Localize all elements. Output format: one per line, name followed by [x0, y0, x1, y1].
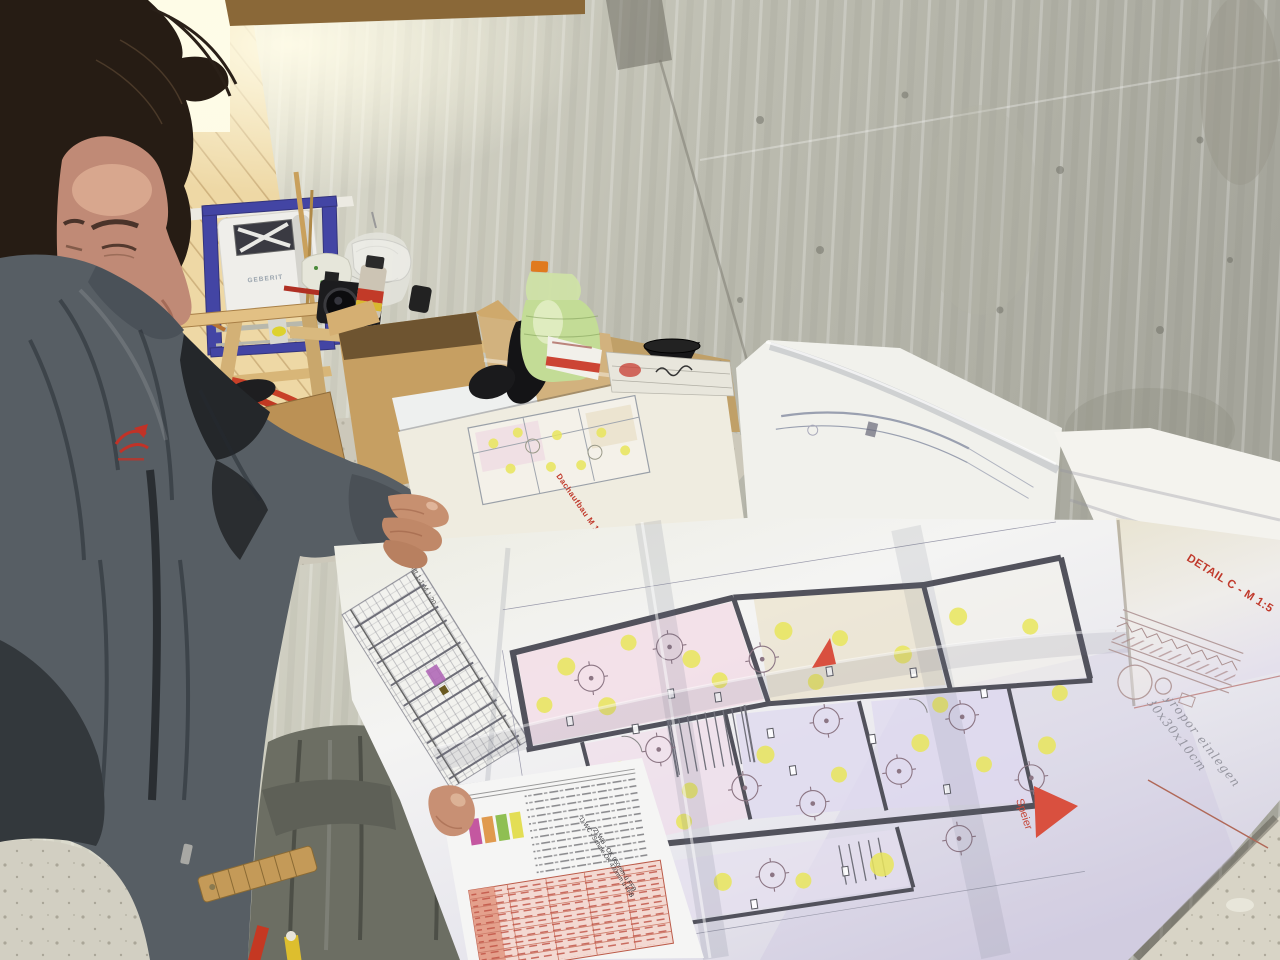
bottle-cap: [531, 261, 549, 273]
red-stamp: [619, 363, 641, 377]
photo-canvas: GEBERIT: [0, 0, 1280, 960]
construction-site-photo: GEBERIT: [0, 0, 1280, 960]
blueprints: Dachaufbau M 1:20: [334, 340, 1280, 960]
